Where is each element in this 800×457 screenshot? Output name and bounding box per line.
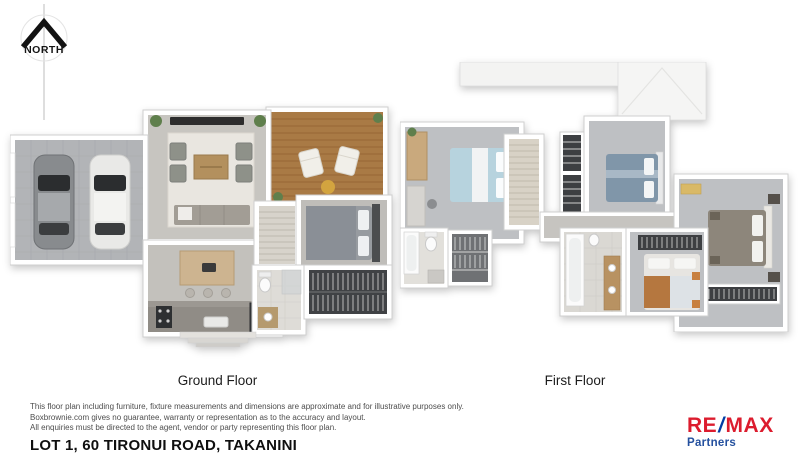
bedroom-2	[584, 116, 670, 220]
disclaimer-line: Boxbrownie.com gives no guarantee, warra…	[30, 413, 650, 424]
vanity	[428, 270, 444, 283]
car-2	[90, 155, 130, 249]
garage-door	[10, 153, 15, 197]
armchair	[236, 143, 252, 160]
vanity	[604, 256, 620, 310]
footer: This floor plan including furniture, fix…	[30, 402, 650, 454]
sofa	[174, 205, 250, 225]
bathtub	[566, 234, 584, 306]
armchair	[170, 143, 186, 160]
garage-door	[10, 203, 15, 247]
tv	[170, 117, 244, 125]
deck-table	[321, 180, 335, 194]
nightstand	[768, 194, 780, 204]
north-label: NORTH	[16, 44, 72, 56]
bench	[681, 184, 701, 194]
garage	[10, 135, 148, 265]
kitchen-sink	[204, 317, 228, 327]
desk	[407, 186, 425, 226]
stairs	[504, 134, 544, 230]
remax-wordmark: RE/MAX	[687, 415, 792, 437]
first-floor-label: First Floor	[400, 373, 750, 388]
living-room	[143, 110, 271, 244]
stool	[222, 289, 231, 298]
walk-in-wardrobe	[448, 230, 492, 286]
shelf	[407, 132, 427, 180]
armchair	[170, 165, 186, 182]
vanity	[258, 307, 278, 328]
remax-subtitle: Partners	[687, 437, 792, 450]
floor-plan-page: NORTH	[0, 0, 800, 457]
disclaimer-line: This floor plan including furniture, fix…	[30, 402, 650, 413]
bathtub	[404, 232, 419, 274]
deck	[266, 107, 388, 209]
north-arrow-icon	[16, 4, 72, 120]
entry-porch	[180, 332, 256, 347]
bed	[306, 204, 380, 262]
car-1	[34, 155, 74, 249]
remax-max: MAX	[726, 414, 774, 437]
bathroom	[400, 228, 448, 288]
shower	[282, 270, 301, 294]
deck-plant-1	[373, 113, 383, 123]
remax-re: RE	[687, 414, 717, 437]
ensuite	[560, 228, 626, 316]
ground-floor-label: Ground Floor	[25, 373, 410, 388]
disclaimer: This floor plan including furniture, fix…	[30, 402, 650, 434]
plant	[254, 115, 266, 127]
bathroom	[252, 265, 306, 335]
first-floor-plan	[400, 62, 790, 332]
remax-logo: RE/MAX Partners	[687, 415, 792, 450]
armchair	[236, 165, 252, 182]
toilet	[259, 272, 271, 292]
toilet	[425, 232, 437, 251]
wardrobe	[702, 284, 780, 304]
roof	[460, 62, 706, 120]
bed	[644, 254, 700, 310]
bed	[708, 206, 772, 268]
stool	[204, 289, 213, 298]
linen-closet	[560, 132, 584, 216]
plant	[408, 128, 417, 137]
plant	[150, 115, 162, 127]
bedroom	[296, 195, 392, 273]
north-indicator: NORTH	[16, 4, 72, 120]
stairs	[254, 201, 300, 269]
nightstand	[768, 272, 780, 282]
toilet	[589, 234, 599, 246]
remax-slash: /	[717, 414, 725, 437]
wardrobe	[304, 265, 392, 319]
disclaimer-line: All enquiries must be directed to the ag…	[30, 423, 650, 434]
ground-floor-plan	[10, 105, 395, 347]
stove	[156, 306, 172, 328]
property-address: LOT 1, 60 TIRONUI ROAD, TAKANINI	[30, 437, 650, 454]
bedroom-3	[626, 228, 708, 316]
wardrobe	[638, 235, 702, 250]
stool	[186, 289, 195, 298]
desk-chair	[427, 199, 437, 209]
bed	[606, 152, 663, 204]
